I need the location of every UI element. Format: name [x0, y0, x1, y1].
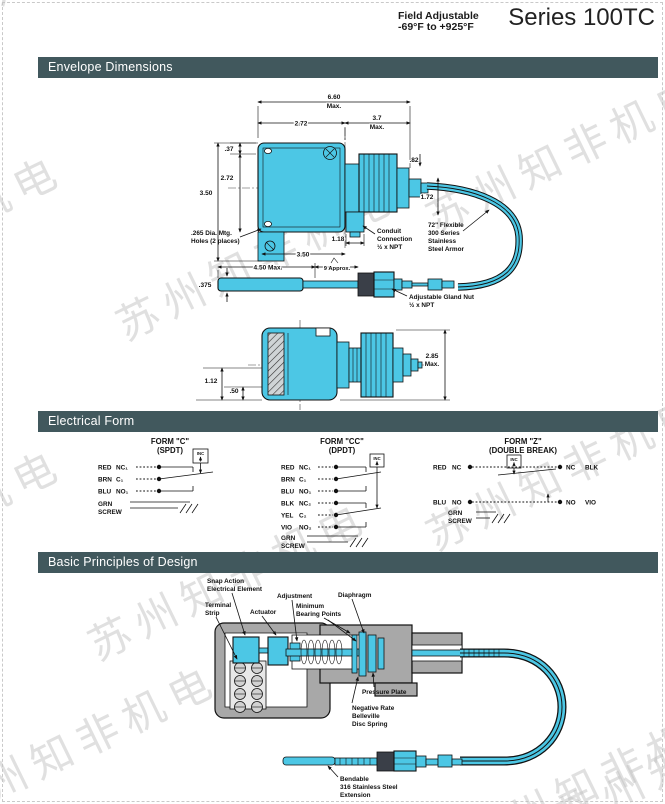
gland-line1: Adjustable Gland Nut — [409, 294, 475, 301]
mounting-holes-note: .265 Dia. Mtg. Holes (2 places) — [191, 229, 261, 245]
form-cc-subtitle: (DPDT) — [329, 446, 356, 455]
dim-285-value: 2.85 — [426, 353, 439, 360]
dimension-050: .50 — [224, 387, 262, 400]
dim-118-value: 1.18 — [332, 236, 345, 243]
dim-375-value: .375 — [199, 282, 212, 289]
dim-285-max: Max. — [425, 361, 440, 368]
series-title: Series 100TC — [505, 4, 655, 32]
form-z-grn: GRN — [448, 510, 463, 517]
section-electrical-form: Electrical Form — [38, 411, 658, 432]
gland-nut — [374, 272, 394, 297]
extension-rod — [412, 650, 462, 656]
form-c-title: FORM "C" — [151, 437, 189, 446]
label-belleville-1: Negative Rate — [352, 705, 395, 712]
dim-272-left-value: 2.72 — [221, 175, 234, 182]
form-c-row2-color: BRN — [98, 477, 112, 484]
form-c-grn: GRN — [98, 501, 113, 508]
datasheet-page: 苏州知非机电 苏州知非机电 苏州知非机电 苏州知非机电 苏州知非机电 苏州知非机… — [0, 0, 665, 804]
dim-112-value: 1.12 — [205, 378, 218, 385]
label-bendable-1: Bendable — [340, 776, 369, 783]
dim-172-value: 1.72 — [421, 194, 434, 201]
armor-line4: Steel Armor — [428, 246, 465, 253]
dimension-450-max: 4.50 Max. — [218, 263, 315, 278]
form-cc-diagram: FORM "CC" (DPDT) INC RED NC₁ BRN C₁ BLU … — [281, 437, 384, 550]
section-basic-principles: Basic Principles of Design — [38, 552, 658, 573]
armor-line3: Stainless — [428, 238, 457, 245]
form-z-row2-left-color: BLU — [433, 500, 447, 507]
switch-body-front-view — [258, 143, 428, 261]
armor-cable-loop — [460, 649, 562, 762]
label-bearing-2: Bearing Points — [296, 611, 342, 618]
form-c-row2-terminal: C₁ — [116, 477, 124, 484]
form-cc-row5-color: YEL — [281, 513, 294, 520]
form-c-inc-label: INC — [197, 451, 204, 456]
label-bendable-2: 316 Stainless Steel — [340, 784, 398, 791]
field-adjustable-note: Field Adjustable -69°F to +925°F — [398, 11, 479, 33]
form-c-row1-terminal: NC₁ — [116, 465, 128, 472]
dim-082-value: .82 — [409, 157, 418, 164]
envelope-dimensions-drawing: 6.60 Max. 2.72 3.7 Max. .37 2.72 — [0, 80, 665, 410]
gland-note: Adjustable Gland Nut ½ x NPT — [392, 289, 475, 309]
form-cc-row1-color: RED — [281, 465, 295, 472]
dimension-112: 1.12 — [196, 368, 262, 400]
dimension-037: .37 — [224, 143, 256, 154]
form-z-ground-icon — [492, 514, 510, 523]
diaphragm-part — [359, 632, 366, 676]
label-diaphragm: Diaphragm — [338, 592, 372, 599]
dim-350-bottom-value: 3.50 — [297, 252, 310, 259]
dimension-9-approx: 9 Approx. — [315, 258, 358, 272]
dim-450-value: 4.50 Max. — [254, 265, 283, 272]
electrical-form-diagrams: FORM "C" (SPDT) INC RED NC₁ BRN C₁ BLU N… — [0, 434, 665, 552]
label-actuator: Actuator — [250, 609, 277, 616]
form-cc-row4-color: BLK — [281, 501, 295, 508]
gland-line2: ½ x NPT — [409, 301, 434, 309]
form-c-row3-color: BLU — [98, 489, 112, 496]
bottom-probe-assembly — [283, 751, 462, 771]
label-belleville-3: Disc Spring — [352, 721, 388, 728]
label-snap-action-2: Electrical Element — [207, 586, 263, 593]
form-c-subtitle: (SPDT) — [157, 446, 183, 455]
label-pressure-plate: Pressure Plate — [362, 689, 407, 696]
dim-37-max-label: Max. — [370, 124, 385, 131]
form-z-row1-right-color: BLK — [585, 465, 599, 472]
switch-body-side-view — [248, 320, 432, 410]
label-adjustment: Adjustment — [277, 593, 313, 600]
form-c-ground-icon — [180, 504, 198, 513]
dim-9-value: 9 Approx. — [324, 266, 351, 272]
basic-principles-drawing: Snap Action Electrical Element Terminal … — [0, 575, 665, 804]
dim-272-top-value: 2.72 — [295, 121, 308, 128]
gland-nut-hatched — [358, 273, 374, 296]
form-cc-row6-color: VIO — [281, 525, 292, 532]
belleville-spring-part — [352, 635, 357, 673]
conduit-fitting — [346, 212, 364, 232]
form-cc-row5-terminal: C₂ — [299, 513, 307, 520]
form-z-row2-right-color: VIO — [585, 500, 596, 507]
label-terminal-1: Terminal — [205, 602, 231, 609]
snap-action-element — [233, 637, 259, 663]
section-envelope-dimensions: Envelope Dimensions — [38, 57, 658, 78]
label-terminal-2: Strip — [205, 610, 220, 617]
label-belleville-2: Belleville — [352, 713, 380, 720]
dimension-082: .82 — [409, 154, 420, 166]
actuator-rod — [286, 649, 362, 656]
conduit-note: Conduit Connection ½ x NPT — [363, 226, 412, 251]
form-c-screw: SCREW — [98, 509, 123, 516]
form-cc-row2-color: BRN — [281, 477, 295, 484]
armor-note: 72" Flexible 300 Series Stainless Steel … — [428, 210, 489, 253]
form-cc-grn: GRN — [281, 535, 296, 542]
form-cc-row3-terminal: NO₁ — [299, 489, 312, 496]
label-bendable-3: Extension — [340, 792, 371, 799]
mtg-note-line1: .265 Dia. Mtg. — [191, 230, 232, 237]
label-bearing-1: Minimum — [296, 603, 324, 610]
actuator-part — [268, 637, 288, 665]
dim-037-value: .37 — [224, 146, 233, 153]
watermark: 苏州知非机电 — [0, 0, 233, 40]
form-z-inc-label: INC — [510, 457, 517, 462]
dimension-37-max: 3.7 Max. — [345, 115, 410, 131]
armor-line1: 72" Flexible — [428, 222, 464, 229]
form-cc-title: FORM "CC" — [320, 437, 364, 446]
form-cc-row4-terminal: NC₂ — [299, 501, 311, 508]
form-cc-ground-icon — [350, 538, 368, 547]
form-z-row2-left-terminal: NO — [452, 500, 462, 507]
dim-350-left-value: 3.50 — [200, 190, 213, 197]
form-cc-row2-terminal: C₁ — [299, 477, 307, 484]
dim-660-value: 6.60 — [328, 94, 341, 101]
conduit-line3: ½ x NPT — [377, 243, 402, 251]
field-adjustable-line2: -69°F to +925°F — [398, 22, 479, 33]
conduit-line2: Connection — [377, 236, 412, 243]
dim-050-value: .50 — [229, 388, 238, 395]
form-c-diagram: FORM "C" (SPDT) INC RED NC₁ BRN C₁ BLU N… — [98, 437, 213, 516]
armor-line2: 300 Series — [428, 230, 460, 237]
form-z-subtitle: (DOUBLE BREAK) — [489, 446, 557, 455]
form-z-diagram: FORM "Z" (DOUBLE BREAK) INC RED NC NC BL… — [433, 437, 599, 525]
form-cc-row3-color: BLU — [281, 489, 295, 496]
form-c-row3-terminal: NO₁ — [116, 489, 129, 496]
form-cc-row1-terminal: NC₁ — [299, 465, 311, 472]
dim-37-value: 3.7 — [372, 115, 381, 122]
form-z-title: FORM "Z" — [504, 437, 542, 446]
dimension-272-top: 2.72 — [258, 121, 345, 141]
form-z-row1-right-terminal: NC — [566, 465, 576, 472]
dim-660-max: Max. — [327, 103, 342, 110]
dimension-272-left: 2.72 — [221, 154, 240, 232]
form-cc-row6-terminal: NO₂ — [299, 525, 312, 532]
form-cc-inc-label: INC — [373, 456, 380, 461]
form-z-row2-right-terminal: NO — [566, 500, 576, 507]
form-z-row1-left-color: RED — [433, 465, 447, 472]
form-cc-screw: SCREW — [281, 543, 306, 550]
form-z-screw: SCREW — [448, 518, 473, 525]
label-snap-action-1: Snap Action — [207, 578, 244, 585]
pressure-plate-part — [368, 635, 376, 672]
form-c-row1-color: RED — [98, 465, 112, 472]
form-z-row1-left-terminal: NC — [452, 465, 462, 472]
conduit-line1: Conduit — [377, 228, 402, 235]
mtg-note-line2: Holes (2 places) — [191, 238, 240, 245]
